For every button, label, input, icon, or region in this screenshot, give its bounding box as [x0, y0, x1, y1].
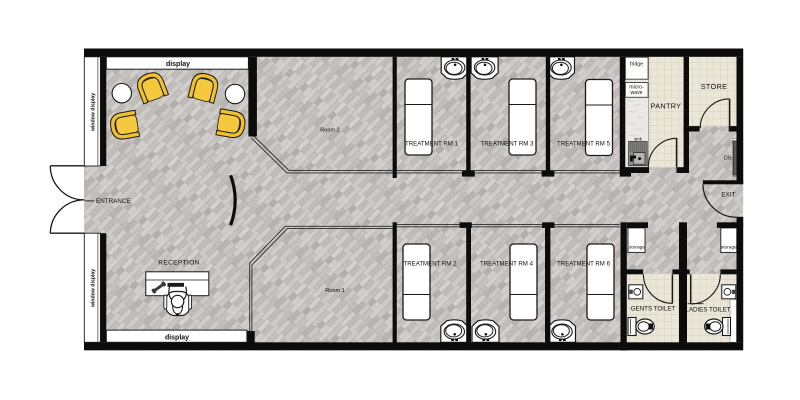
svg-text:EXIT: EXIT: [721, 192, 736, 199]
svg-text:window display: window display: [90, 269, 96, 308]
svg-text:window display: window display: [90, 93, 96, 132]
svg-text:TREATMENT RM 3: TREATMENT RM 3: [481, 140, 535, 147]
svg-text:TREATMENT RM 2: TREATMENT RM 2: [404, 261, 458, 268]
svg-text:display: display: [165, 334, 189, 341]
svg-text:LADIES TOILET: LADIES TOILET: [685, 307, 730, 314]
svg-text:ENTRANCE: ENTRANCE: [96, 198, 131, 205]
svg-text:sink: sink: [634, 137, 643, 142]
svg-text:Room 2: Room 2: [320, 128, 340, 134]
svg-text:storage: storage: [721, 244, 737, 250]
svg-text:DB: DB: [724, 156, 732, 162]
svg-text:STORE: STORE: [701, 82, 728, 91]
svg-text:RECEPTION: RECEPTION: [158, 260, 200, 267]
svg-text:Room 1: Room 1: [325, 288, 345, 294]
svg-text:GENTS TOILET: GENTS TOILET: [631, 306, 676, 313]
svg-text:storage: storage: [629, 244, 645, 250]
svg-text:TREATMENT RM 5: TREATMENT RM 5: [557, 140, 611, 147]
svg-text:wave: wave: [630, 90, 642, 96]
svg-text:TREATMENT RM 1: TREATMENT RM 1: [405, 140, 459, 147]
svg-text:display: display: [166, 61, 190, 68]
svg-text:fridge: fridge: [630, 61, 643, 67]
svg-text:TREATMENT RM 4: TREATMENT RM 4: [480, 261, 534, 268]
svg-text:TREATMENT RM 6: TREATMENT RM 6: [557, 261, 611, 268]
svg-text:PANTRY: PANTRY: [651, 101, 682, 110]
